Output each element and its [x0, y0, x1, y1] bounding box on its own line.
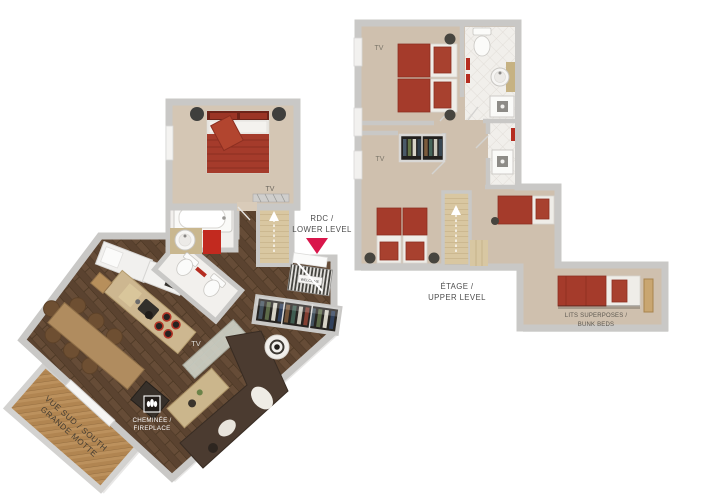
- bedside-table: [445, 110, 456, 121]
- wardrobe: [400, 135, 444, 161]
- single-bed: [491, 196, 554, 225]
- stair-landing: [470, 240, 488, 266]
- bunk-label-line2: BUNK BEDS: [578, 322, 614, 328]
- pouf: [265, 335, 289, 359]
- down-triangle-marker: [306, 238, 328, 254]
- bedside-table: [429, 253, 440, 264]
- towel-red: [511, 128, 515, 141]
- twin-bed: [403, 208, 427, 263]
- bath-mat: [203, 230, 221, 254]
- sofa-cushion: [208, 443, 218, 453]
- lower-marker-line1: RDC /: [310, 214, 334, 223]
- bedroom-tv-label: TV: [266, 186, 275, 193]
- window: [166, 126, 173, 160]
- floorplan-canvas: VUE SUD / SOUTH GRANDE MOTTE: [0, 0, 707, 500]
- bedside-table: [365, 253, 376, 264]
- wood-door: [644, 279, 653, 312]
- shower: [492, 150, 513, 174]
- bunk-bed: [558, 276, 640, 309]
- lower-marker-line2: LOWER LEVEL: [292, 225, 352, 234]
- fireplace-label-line1: CHEMINÉE /: [132, 417, 171, 424]
- upper-label-line2: UPPER LEVEL: [428, 293, 486, 302]
- floorplan-image: VUE SUD / SOUTH GRANDE MOTTE: [0, 0, 707, 500]
- double-bed: [207, 111, 269, 173]
- upper-level-plan: TV: [354, 23, 665, 328]
- toilet: [473, 28, 491, 56]
- bedroom-lower: TV: [166, 102, 297, 220]
- stairs-upper: [443, 192, 470, 266]
- bunk-label-line1: LITS SUPERPOSES /: [565, 313, 628, 319]
- bedside-table: [190, 107, 204, 121]
- wall-tv-unit: [253, 194, 289, 202]
- stairs-lower: [258, 207, 291, 265]
- towel-red: [466, 58, 470, 70]
- bedside-table: [445, 34, 456, 45]
- upper-windows: [354, 38, 362, 179]
- bedroom1-tv-label: TV: [375, 45, 384, 52]
- upper-label-line1: ÉTAGE /: [441, 282, 474, 291]
- living-tv-label: TV: [191, 339, 201, 348]
- doormat: WELCOME: [287, 264, 332, 296]
- bedroom2-tv-label: TV: [376, 156, 385, 163]
- towel-red: [466, 74, 470, 83]
- shower: [490, 96, 514, 117]
- bedside-table: [272, 107, 286, 121]
- lower-level-plan: VUE SUD / SOUTH GRANDE MOTTE: [7, 102, 352, 490]
- fireplace-label-line2: FIREPLACE: [133, 425, 170, 432]
- fireplace-icon: [144, 396, 160, 412]
- twin-bed: [377, 208, 401, 263]
- lower-level-marker: RDC / LOWER LEVEL: [292, 214, 352, 254]
